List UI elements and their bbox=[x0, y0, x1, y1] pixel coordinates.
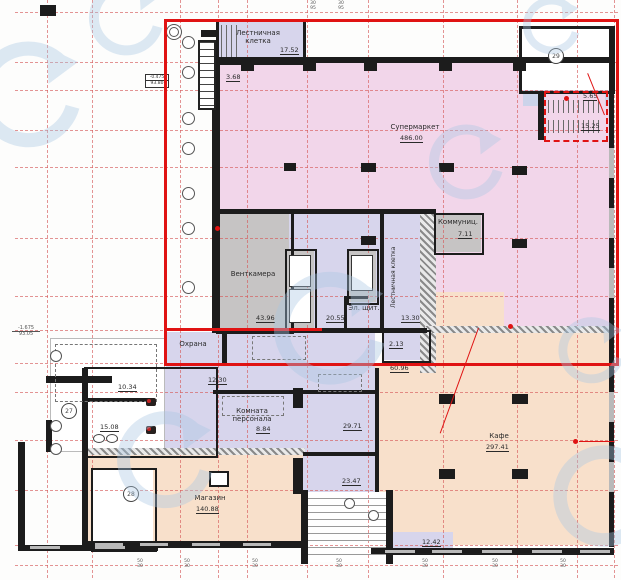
dim-bottom: 5030 bbox=[180, 560, 194, 572]
elevation-mark-2: -1.675 93.05 bbox=[12, 326, 40, 338]
dim-bottom: 5030 bbox=[556, 560, 570, 572]
axis-marker-27: 27 bbox=[61, 403, 77, 419]
axis-marker-28: 28 bbox=[123, 486, 139, 502]
red-boundary-step bbox=[164, 328, 322, 331]
toilet-icon-2 bbox=[146, 426, 156, 434]
grid-line-horizontal bbox=[15, 565, 618, 566]
wc2-area: 15.08 bbox=[100, 423, 119, 432]
dim-bottom: 5030 bbox=[488, 560, 502, 572]
window-segment bbox=[243, 543, 271, 546]
sink-icon-1 bbox=[93, 434, 105, 443]
window-segment bbox=[609, 392, 614, 422]
dim-bottom: 5030 bbox=[248, 560, 262, 572]
wall-west-lower bbox=[18, 442, 25, 548]
red-dot-1 bbox=[215, 226, 220, 231]
window-segment bbox=[532, 550, 562, 553]
detail-circle bbox=[344, 498, 355, 509]
top-left-stamp bbox=[40, 5, 56, 16]
wall-staff-right-a bbox=[293, 388, 303, 408]
window-segment bbox=[385, 550, 415, 553]
column bbox=[512, 469, 528, 479]
red-boundary-rect bbox=[164, 19, 619, 366]
watermark-logo bbox=[85, 0, 170, 63]
ramp-area: 12.42 bbox=[422, 538, 441, 547]
dim-bottom: 5030 bbox=[418, 560, 432, 572]
red-leader-1 bbox=[579, 441, 614, 442]
red-dot-3 bbox=[508, 324, 513, 329]
grid-line-vertical bbox=[47, 0, 48, 578]
axis-circle bbox=[50, 350, 62, 362]
dim-top: 3095 bbox=[334, 2, 348, 14]
cafe-area: 297.41 bbox=[486, 443, 509, 452]
detail-circle bbox=[368, 510, 379, 521]
window-segment bbox=[482, 550, 512, 553]
terrace-dashed-outline bbox=[55, 344, 157, 402]
window-segment bbox=[432, 550, 462, 553]
window-segment bbox=[192, 543, 220, 546]
sink-icon-2 bbox=[106, 434, 118, 443]
furniture-corridor bbox=[318, 374, 362, 392]
axis-circle bbox=[50, 420, 62, 432]
cafe-label: Кафе bbox=[477, 433, 521, 441]
staff-area: 8.84 bbox=[256, 425, 270, 434]
window-segment bbox=[609, 462, 614, 492]
staff-label: Комнатаперсонала bbox=[225, 408, 279, 423]
toilet-icon-1 bbox=[146, 398, 156, 406]
window-segment bbox=[580, 550, 610, 553]
wall-vest-top bbox=[303, 452, 377, 456]
dim-bottom: 5030 bbox=[133, 560, 147, 572]
wall-room28 bbox=[91, 468, 157, 552]
watermark-logo bbox=[0, 38, 90, 158]
corridor1230-area: 12.30 bbox=[208, 376, 227, 385]
shop-column-box bbox=[209, 471, 229, 487]
column bbox=[512, 394, 528, 404]
dim-top: 3095 bbox=[306, 2, 320, 14]
floor-plan-canvas: Лестничнаяклетка 17.52 3.68 Супермаркет … bbox=[0, 0, 621, 580]
wall-entrance-left bbox=[301, 490, 308, 564]
window-segment bbox=[95, 546, 125, 549]
axis-circle bbox=[50, 443, 62, 455]
shop-area: 140.88 bbox=[196, 505, 219, 514]
wall-staff-right-b bbox=[293, 458, 303, 494]
dim-bottom: 5030 bbox=[332, 560, 346, 572]
corridor2971-area: 29.71 bbox=[343, 422, 362, 431]
window-segment bbox=[30, 546, 60, 549]
wc1-area: 10.34 bbox=[118, 383, 137, 392]
shop-label: Магазин bbox=[180, 495, 240, 503]
window-segment bbox=[140, 543, 168, 546]
vestibule-area: 23.47 bbox=[342, 477, 361, 486]
wall-cafe-left bbox=[375, 368, 379, 492]
red-dot-2 bbox=[564, 96, 569, 101]
column bbox=[439, 469, 455, 479]
red-dot-4 bbox=[573, 439, 578, 444]
